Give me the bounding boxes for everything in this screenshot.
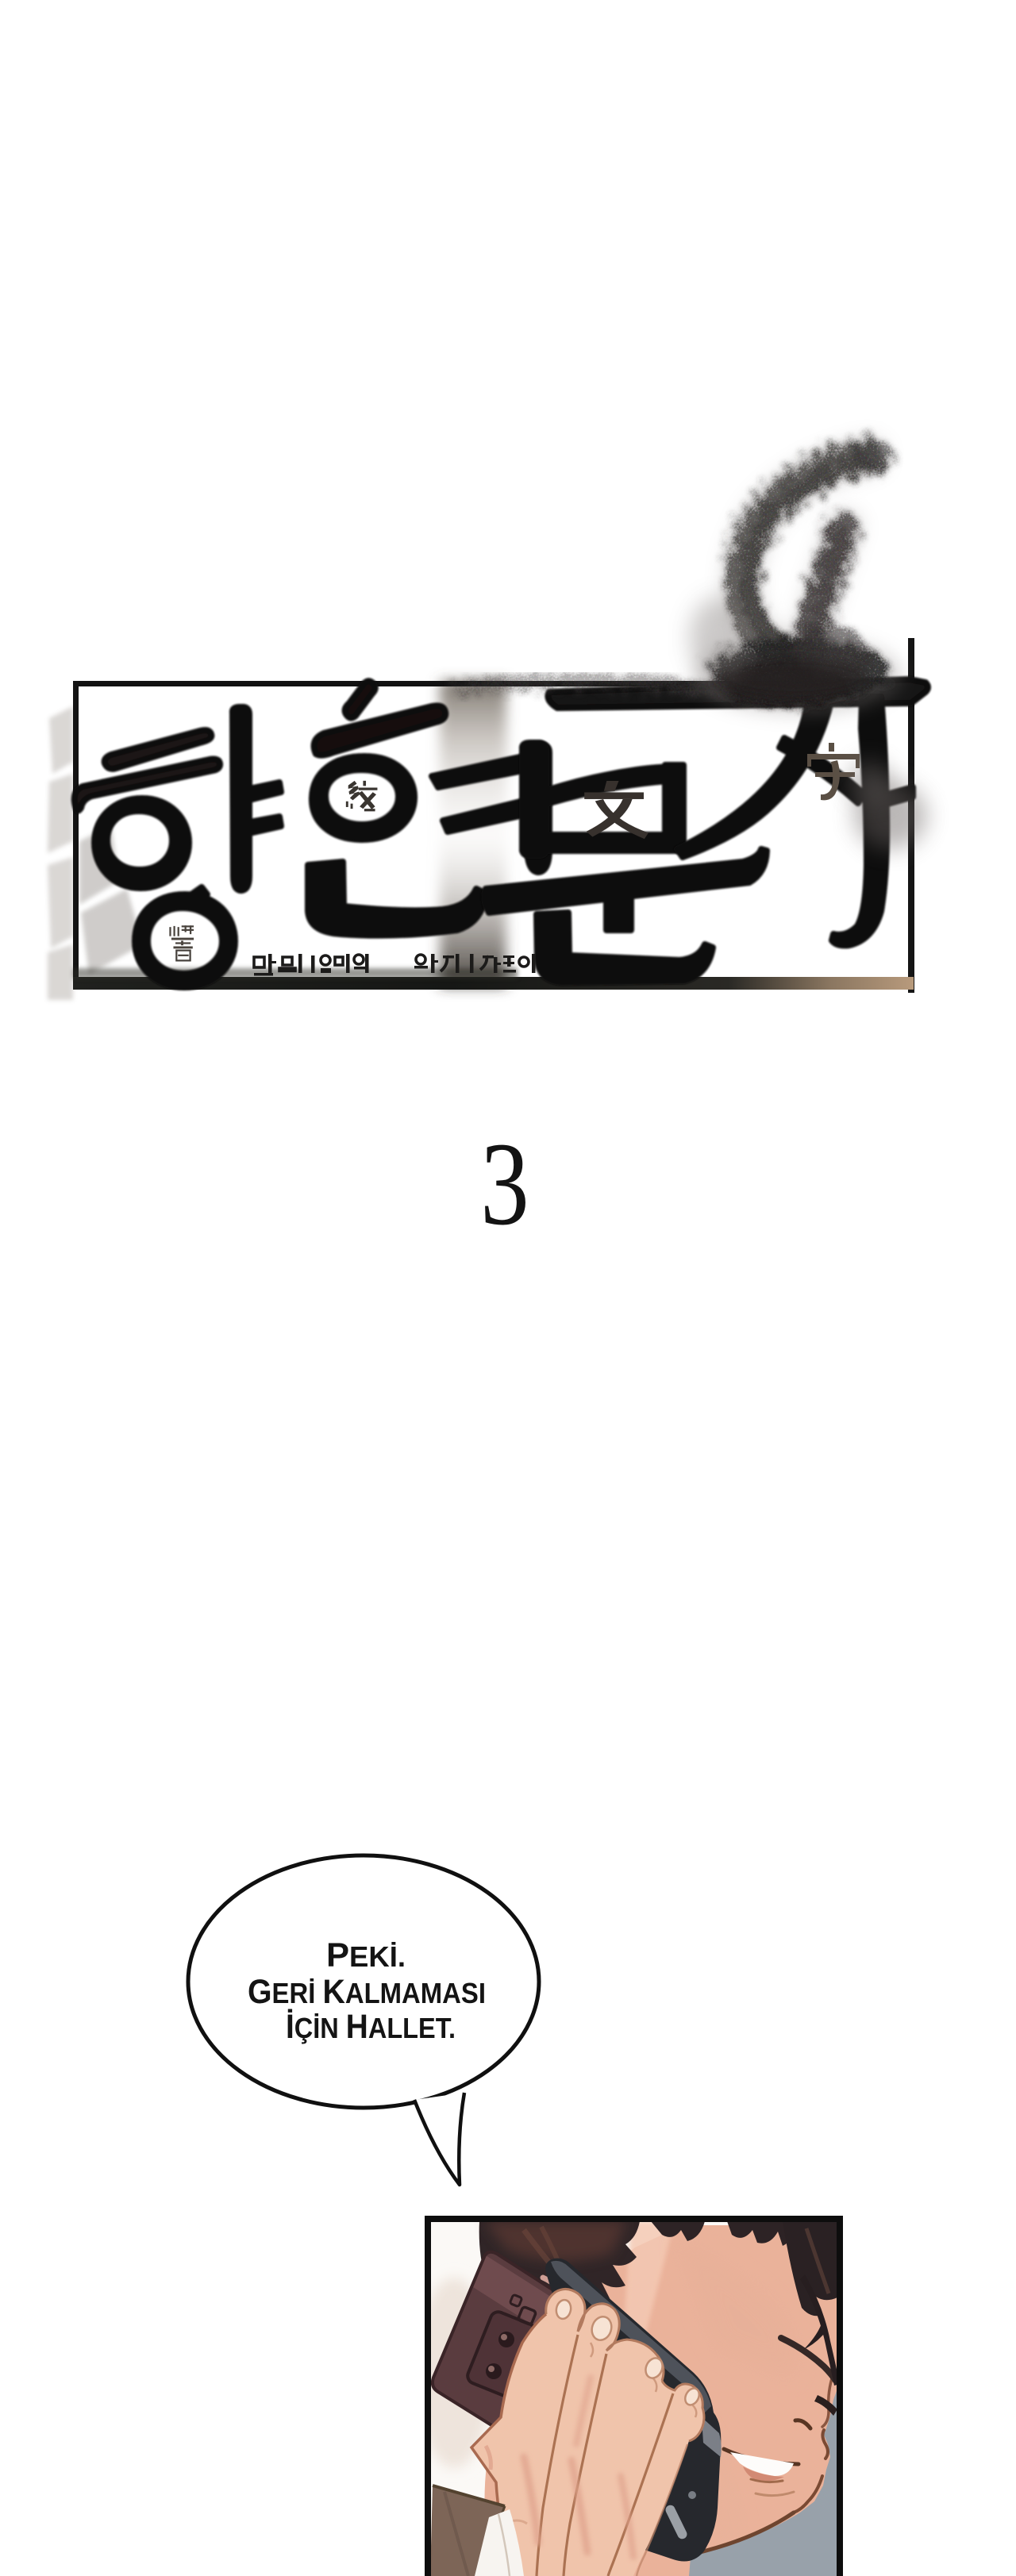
svg-text:3: 3 bbox=[480, 1118, 529, 1250]
svg-text:GERİ KALMAMASI: GERİ KALMAMASI bbox=[248, 1973, 486, 2011]
svg-text:PEKİ.: PEKİ. bbox=[326, 1936, 406, 1974]
svg-text:İÇİN HALLET.: İÇİN HALLET. bbox=[286, 2008, 456, 2046]
